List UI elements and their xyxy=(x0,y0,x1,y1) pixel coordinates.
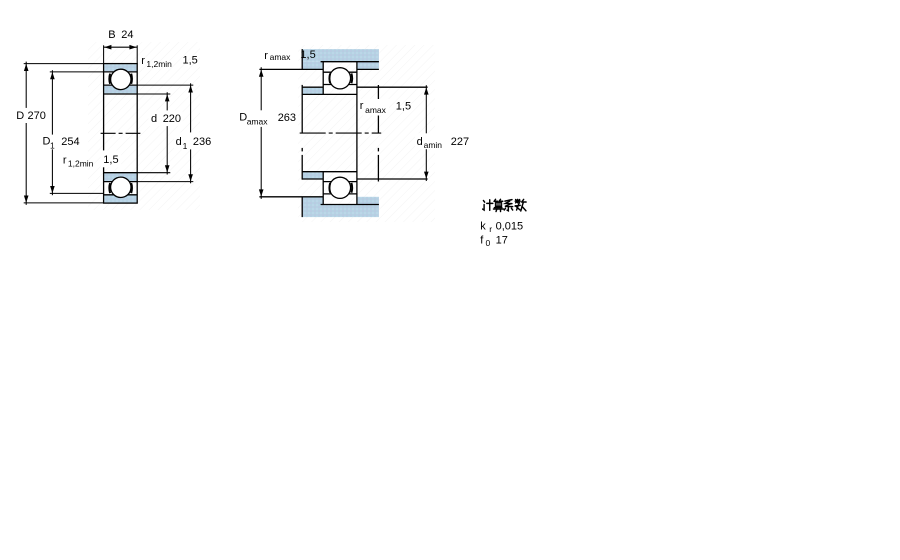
svg-text:d: d xyxy=(151,113,157,125)
svg-text:amax: amax xyxy=(247,116,269,126)
svg-text:254: 254 xyxy=(61,136,79,148)
svg-text:0: 0 xyxy=(486,238,491,248)
svg-text:amin: amin xyxy=(424,140,443,150)
svg-text:24: 24 xyxy=(121,29,133,41)
svg-text:1: 1 xyxy=(183,141,188,151)
svg-text:r: r xyxy=(63,154,67,166)
svg-text:220: 220 xyxy=(163,113,181,125)
svg-text:r: r xyxy=(489,224,492,234)
svg-text:236: 236 xyxy=(193,136,211,148)
svg-text:0,015: 0,015 xyxy=(496,221,524,233)
svg-text:1,5: 1,5 xyxy=(300,49,315,61)
svg-text:amax: amax xyxy=(270,52,292,62)
svg-text:r: r xyxy=(360,100,364,112)
svg-text:1,5: 1,5 xyxy=(103,154,118,166)
svg-text:1,2min: 1,2min xyxy=(146,59,172,69)
svg-text:227: 227 xyxy=(451,136,469,148)
svg-text:D: D xyxy=(16,110,24,122)
svg-text:17: 17 xyxy=(496,235,508,247)
svg-text:amax: amax xyxy=(365,105,387,115)
svg-text:k: k xyxy=(480,220,486,232)
svg-text:d: d xyxy=(176,136,182,148)
svg-text:r: r xyxy=(264,50,268,62)
svg-text:1,5: 1,5 xyxy=(183,55,198,67)
svg-text:1,2min: 1,2min xyxy=(68,158,94,168)
svg-text:263: 263 xyxy=(278,112,296,124)
svg-text:270: 270 xyxy=(28,110,46,122)
svg-text:B: B xyxy=(108,29,115,41)
svg-text:1: 1 xyxy=(50,140,55,150)
svg-text:1,5: 1,5 xyxy=(396,101,411,113)
svg-text:d: d xyxy=(417,136,423,148)
svg-text:r: r xyxy=(141,55,145,67)
